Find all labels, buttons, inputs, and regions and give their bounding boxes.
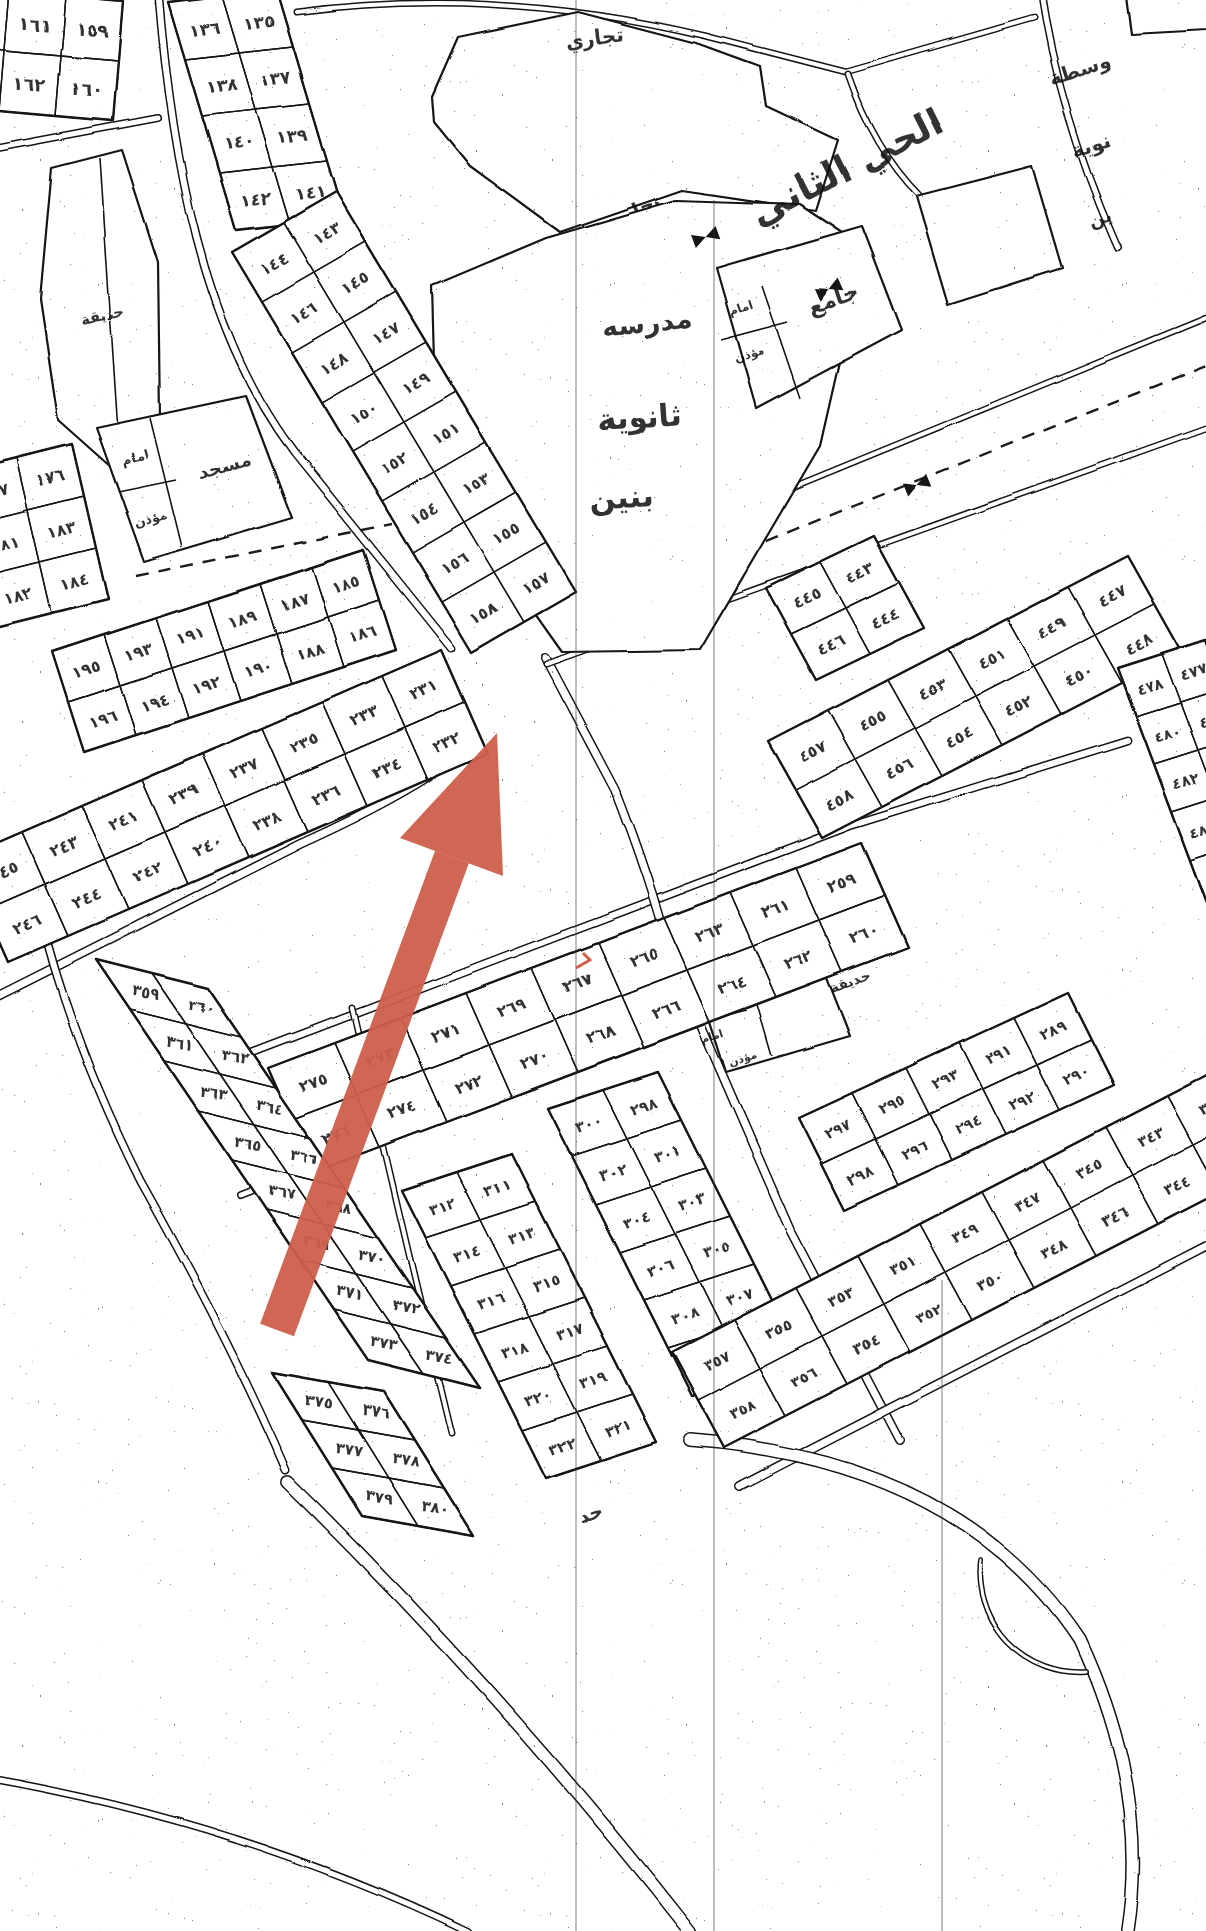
scan-noise-overlay [0,0,1206,1931]
scanned-map-page: تجاريتجاريمدرسهثانويةبنينحديقةاماممؤذنمس… [0,0,1206,1931]
cadastral-map: تجاريتجاريمدرسهثانويةبنينحديقةاماممؤذنمس… [0,0,1206,1931]
